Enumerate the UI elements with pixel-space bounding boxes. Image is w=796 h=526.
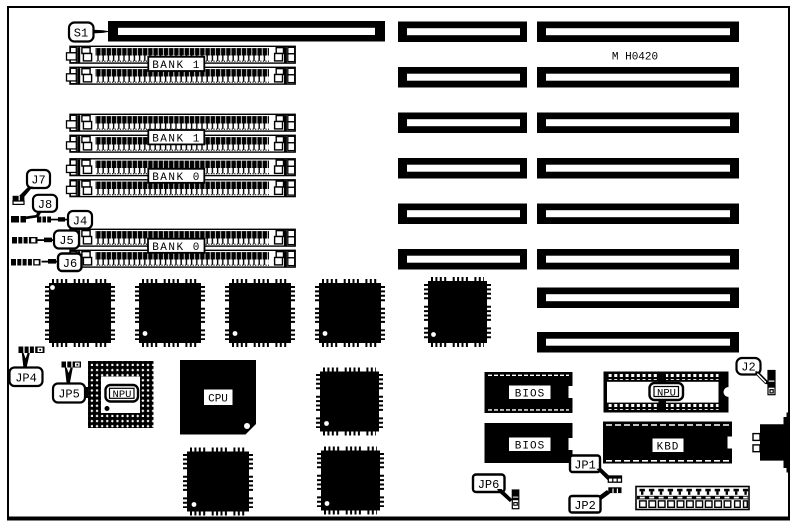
svg-text:BANK 0: BANK 0 [152, 242, 201, 254]
svg-text:J6: J6 [63, 257, 77, 271]
svg-text:BANK 1: BANK 1 [152, 133, 201, 145]
svg-text:M H0420: M H0420 [612, 52, 658, 64]
svg-text:NPU: NPU [657, 388, 676, 400]
svg-text:JP1: JP1 [574, 459, 596, 473]
svg-text:BANK 1: BANK 1 [152, 60, 201, 72]
svg-text:KBD: KBD [657, 442, 680, 454]
svg-text:J2: J2 [741, 361, 755, 375]
svg-text:JP5: JP5 [58, 388, 80, 402]
svg-text:NPU: NPU [113, 389, 132, 401]
svg-text:J7: J7 [31, 174, 45, 188]
svg-text:J5: J5 [59, 234, 73, 248]
svg-text:JP4: JP4 [15, 372, 37, 386]
svg-text:BANK 0: BANK 0 [152, 172, 201, 184]
svg-text:BIOS: BIOS [515, 389, 545, 401]
svg-text:J4: J4 [73, 215, 87, 229]
svg-text:J8: J8 [38, 198, 52, 212]
svg-text:BIOS: BIOS [515, 441, 545, 453]
svg-text:JP6: JP6 [478, 478, 500, 492]
svg-text:JP2: JP2 [574, 499, 596, 513]
svg-text:S1: S1 [74, 27, 88, 41]
svg-text:CPU: CPU [208, 394, 228, 406]
